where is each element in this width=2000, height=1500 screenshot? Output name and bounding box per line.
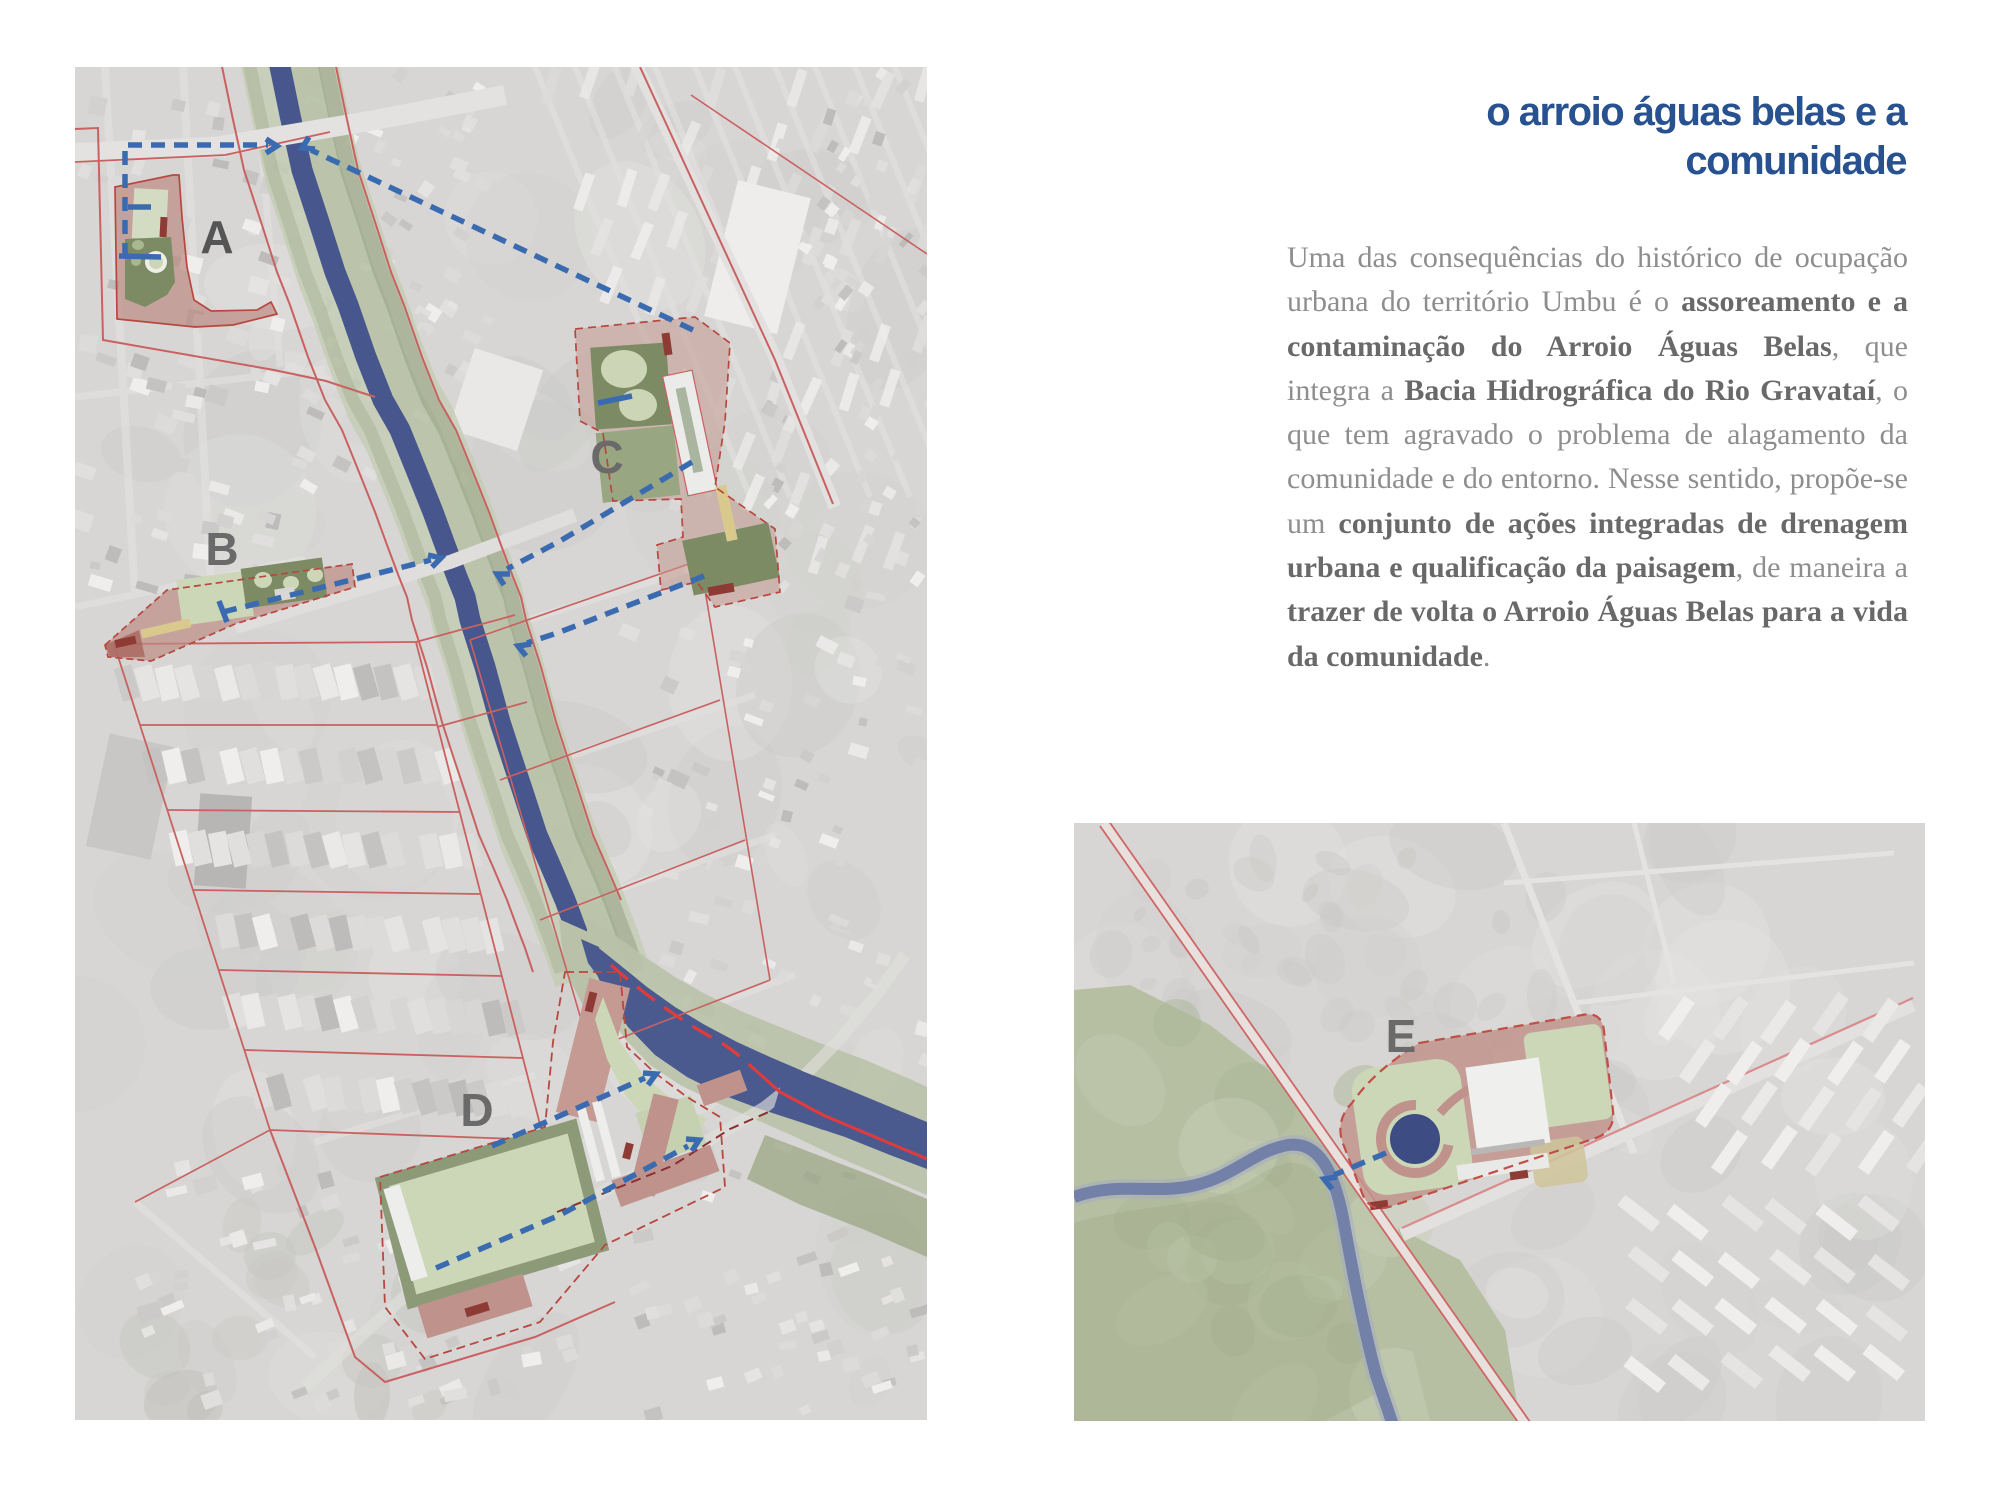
svg-text:C: C bbox=[590, 431, 623, 483]
svg-text:E: E bbox=[1386, 1010, 1417, 1062]
svg-text:B: B bbox=[205, 523, 238, 575]
svg-text:D: D bbox=[460, 1084, 493, 1136]
svg-text:A: A bbox=[200, 211, 233, 263]
